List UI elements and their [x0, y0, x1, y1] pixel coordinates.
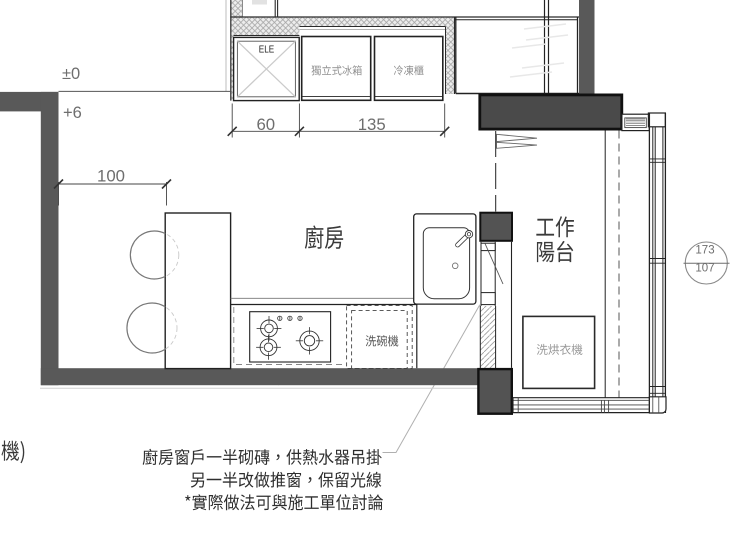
svg-text:60: 60: [256, 115, 275, 134]
svg-text:107: 107: [695, 263, 714, 275]
svg-text:100: 100: [97, 167, 125, 186]
svg-text:+6: +6: [63, 104, 82, 122]
svg-text:ELE: ELE: [259, 42, 274, 54]
svg-text:173: 173: [695, 245, 714, 257]
svg-text:±0: ±0: [62, 65, 80, 83]
svg-text:135: 135: [358, 115, 386, 134]
